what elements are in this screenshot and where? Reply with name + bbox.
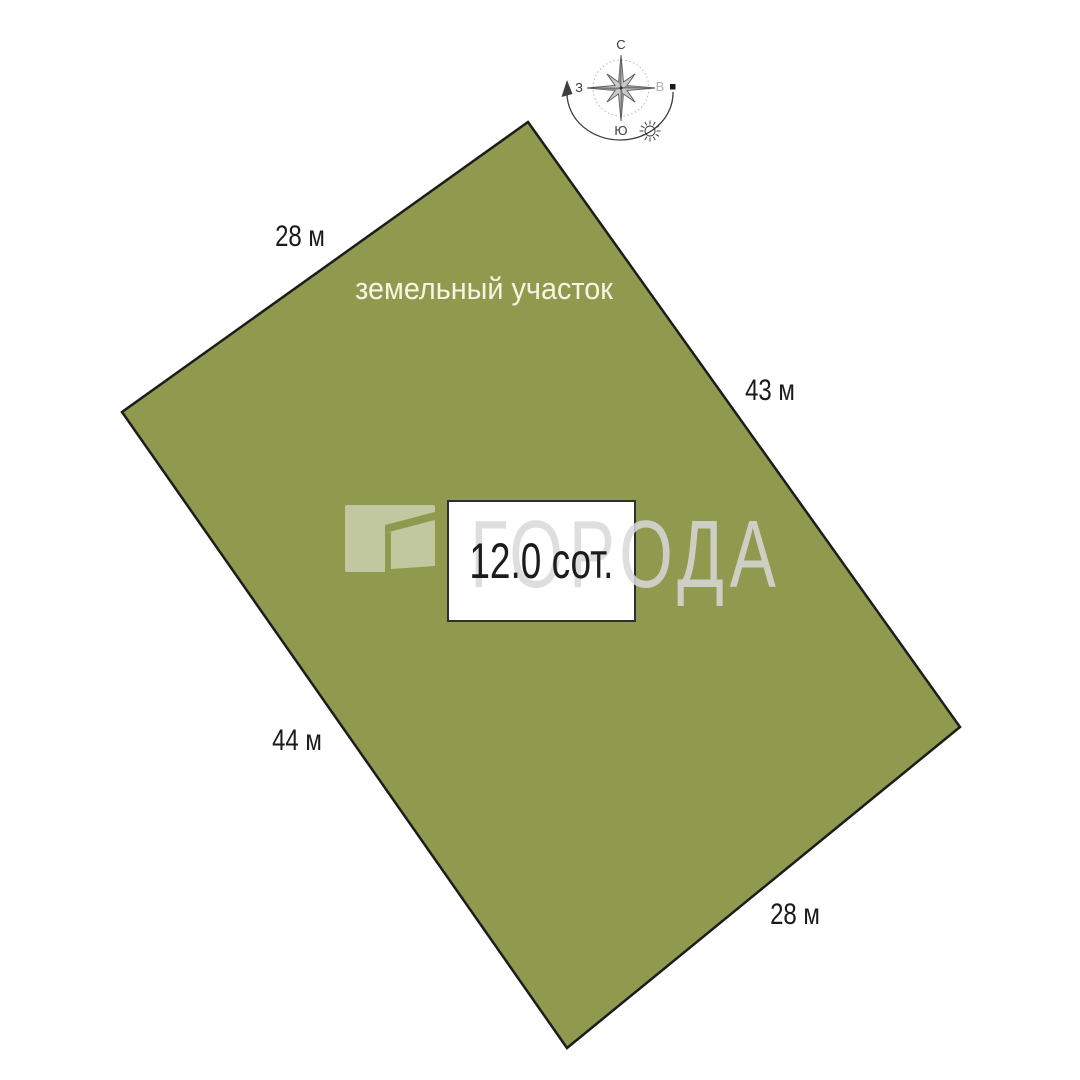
compass-east-label: В (656, 79, 665, 94)
compass-north-label: С (616, 37, 625, 52)
compass-center-dot (619, 86, 622, 89)
dimension-label-right-top: 43 м (745, 374, 795, 408)
dimension-label-left-bottom: 44 м (272, 724, 322, 758)
land-plot-scheme: земельный участок 28 м 43 м 44 м 28 м ГО… (0, 0, 1080, 1080)
dimension-label-top-left: 28 м (275, 220, 325, 254)
square-marker-icon (670, 84, 676, 90)
sun-icon (640, 121, 661, 142)
dimension-label-bottom-right: 28 м (770, 898, 820, 932)
compass-south-label: Ю (614, 123, 627, 138)
compass-rose-icon: С Ю З В (543, 18, 713, 166)
compass-west-label: З (575, 80, 583, 95)
rotation-arrow-head (562, 80, 573, 97)
area-box (447, 500, 636, 622)
plot-name-label: земельный участок (355, 271, 613, 307)
